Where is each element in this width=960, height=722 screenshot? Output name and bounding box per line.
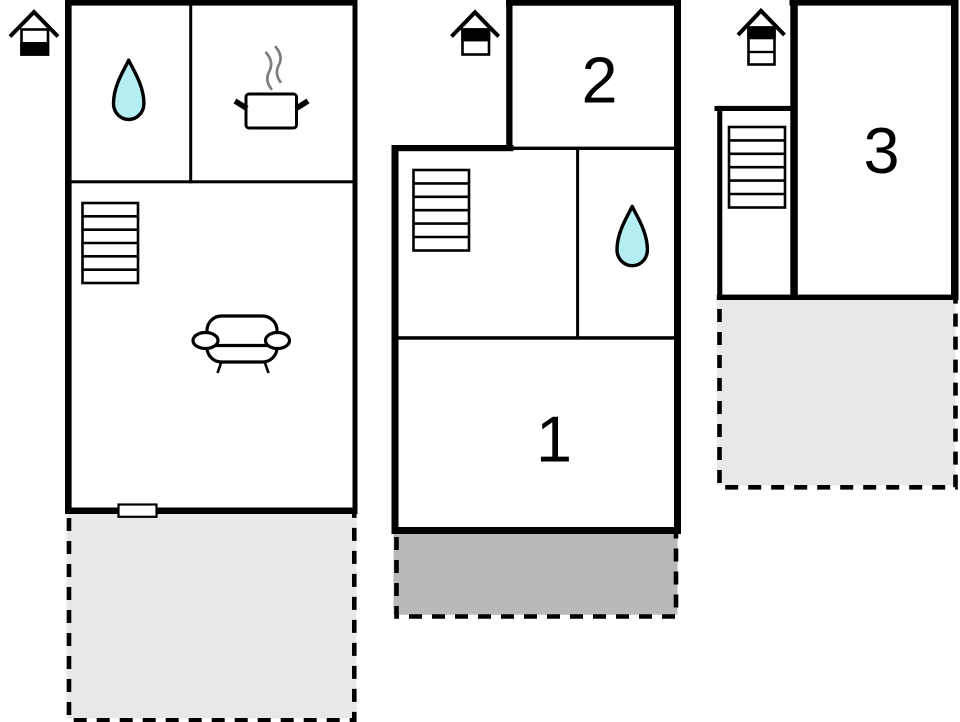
svg-text:3: 3 [863, 114, 899, 187]
svg-text:2: 2 [581, 44, 617, 117]
svg-text:1: 1 [536, 403, 572, 476]
